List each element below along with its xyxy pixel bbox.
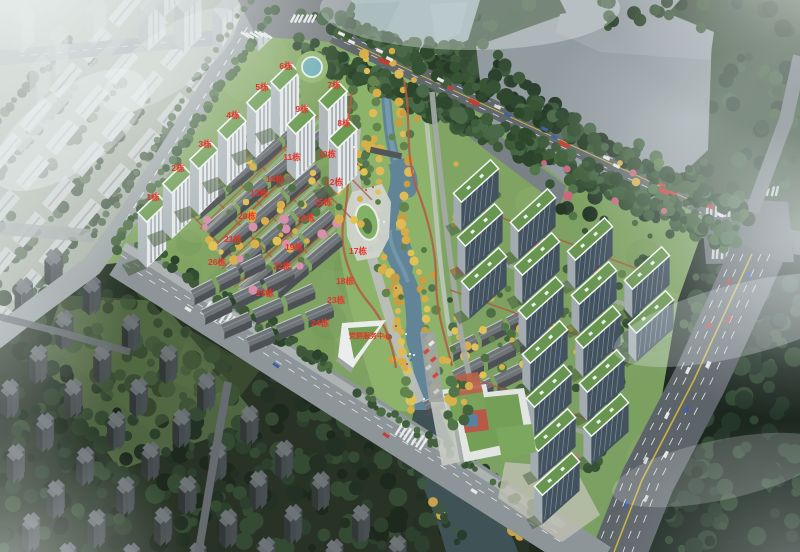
svg-text:11栋: 11栋 <box>283 152 301 162</box>
svg-text:26栋: 26栋 <box>208 257 226 267</box>
svg-text:2栋: 2栋 <box>171 163 185 173</box>
svg-text:20栋: 20栋 <box>238 211 256 221</box>
svg-text:14栋: 14栋 <box>266 174 284 184</box>
svg-text:4栋: 4栋 <box>226 110 240 120</box>
svg-text:党群服务中心: 党群服务中心 <box>349 331 391 340</box>
svg-text:15栋: 15栋 <box>314 197 332 207</box>
svg-text:8栋: 8栋 <box>337 118 351 128</box>
svg-text:21栋: 21栋 <box>224 234 242 244</box>
svg-text:18栋: 18栋 <box>336 276 354 286</box>
svg-text:17栋: 17栋 <box>349 246 367 256</box>
svg-text:9栋: 9栋 <box>295 104 309 114</box>
svg-text:16栋: 16栋 <box>297 213 315 223</box>
svg-text:23栋: 23栋 <box>327 295 345 305</box>
svg-text:13栋: 13栋 <box>250 188 268 198</box>
svg-text:19栋: 19栋 <box>285 242 303 252</box>
svg-text:7栋: 7栋 <box>327 80 341 90</box>
svg-text:1栋: 1栋 <box>146 192 160 202</box>
svg-text:12栋: 12栋 <box>325 177 343 187</box>
svg-text:5栋: 5栋 <box>255 82 269 92</box>
svg-text:6栋: 6栋 <box>279 61 293 71</box>
svg-text:25栋: 25栋 <box>256 288 274 298</box>
svg-text:22栋: 22栋 <box>273 261 291 271</box>
svg-text:3栋: 3栋 <box>198 139 212 149</box>
svg-text:24栋: 24栋 <box>311 318 329 328</box>
svg-text:10栋: 10栋 <box>318 149 336 159</box>
